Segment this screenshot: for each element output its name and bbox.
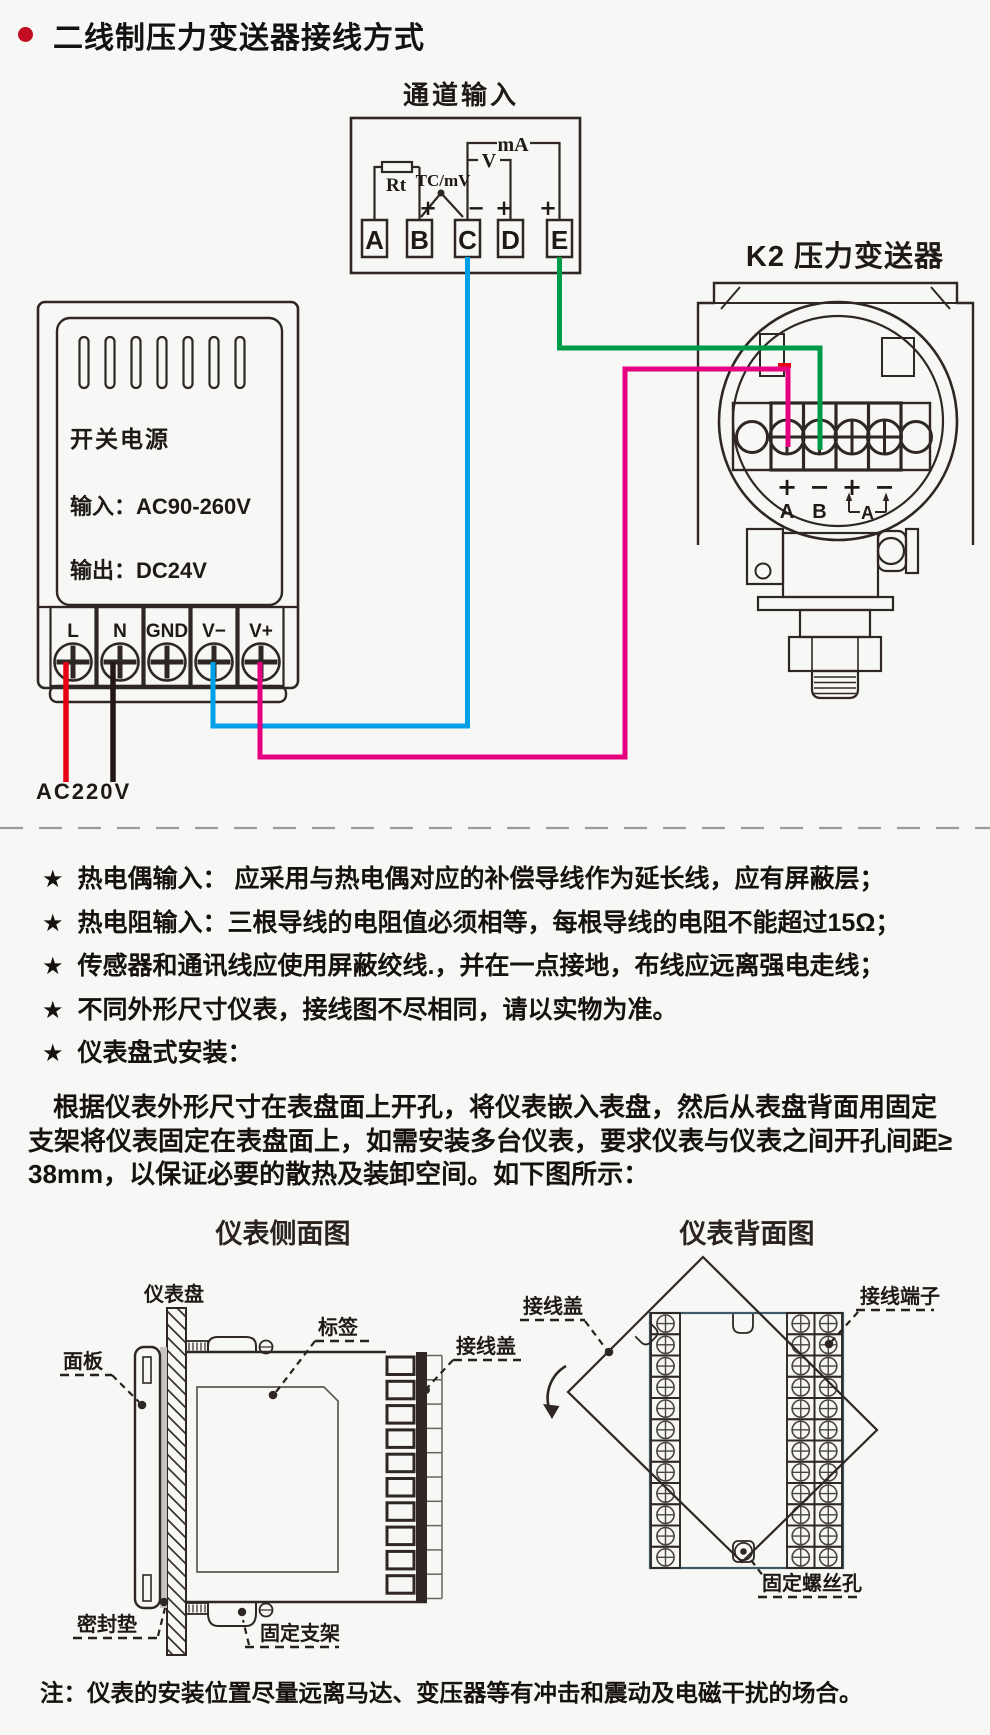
terminal-screw-columns <box>651 1313 842 1568</box>
back-view-diagram: 接线盖 接线端子 固定螺丝孔 <box>520 1257 940 1597</box>
terminal-n-label: N <box>113 621 127 642</box>
sign-minus-c: − <box>467 196 485 220</box>
terminal-block-label: 接线端子 <box>860 1284 940 1308</box>
terminal-c-letter: C <box>458 225 477 255</box>
terminal-vminus-label: V− <box>202 621 226 642</box>
note-item-3: ★传感器和通讯线应使用屏蔽绞线.，并在一点接地，布线应远离强电走线； <box>42 945 900 989</box>
ma-label: mA <box>497 134 529 156</box>
tx-sign-3: + <box>842 473 862 501</box>
back-wiring-cover-label: 接线盖 <box>523 1294 583 1318</box>
installation-paragraph: 根据仪表外形尺寸在表盘面上开孔，将仪表嵌入表盘，然后从表盘背面用固定 支架将仪表… <box>28 1091 952 1192</box>
paragraph-line-3: 38mm，以保证必要的散热及装卸空间。如下图所示： <box>28 1158 952 1192</box>
star-icon: ★ <box>42 1032 64 1076</box>
transmitter-diagram: K2 压力变送器 + − + − A B <box>698 239 973 698</box>
mains-voltage-label: AC220V <box>36 779 131 804</box>
label-sticker-area <box>197 1387 338 1572</box>
rt-resistor-symbol <box>382 162 412 172</box>
note-item-5: ★仪表盘式安装： <box>42 1032 900 1076</box>
tc-mv-label: TC/mV <box>416 171 472 190</box>
terminal-d-letter: D <box>501 225 520 255</box>
wire-signal-blue <box>213 257 468 726</box>
hex-nut <box>789 637 881 671</box>
note-text-1: 热电偶输入： 应采用与热电偶对应的补偿导线作为延长线，应有屏蔽层； <box>78 858 885 902</box>
note-item-1: ★热电偶输入： 应采用与热电偶对应的补偿导线作为延长线，应有屏蔽层； <box>42 858 900 902</box>
bottom-note: 注：仪表的安装位置尽量远离马达、变压器等有冲击和震动及电磁干扰的场合。 <box>40 1674 863 1708</box>
mounting-panel <box>167 1308 186 1655</box>
panel-label: 仪表盘 <box>143 1282 204 1306</box>
tx-sign-2: − <box>809 473 829 501</box>
power-supply-name: 开关电源 <box>70 426 170 452</box>
star-icon: ★ <box>42 945 64 989</box>
terminal-b-letter: B <box>410 225 429 255</box>
note-text-5: 仪表盘式安装： <box>78 1032 253 1076</box>
side-view-diagram: 仪表盘 面板 标签 接线盖 密封垫 固定支架 <box>60 1282 521 1655</box>
note-text-3: 传感器和通讯线应使用屏蔽绞线.，并在一点接地，布线应远离强电走线； <box>78 945 885 989</box>
tx-sign-1: + <box>777 473 797 501</box>
sign-plus-d: + <box>495 196 513 220</box>
sticker-label: 标签 <box>318 1315 359 1339</box>
side-view-title: 仪表侧面图 <box>153 1212 413 1251</box>
front-bezel <box>135 1347 160 1608</box>
terminal-vplus-label: V+ <box>249 621 273 642</box>
fixing-bracket <box>208 1602 256 1626</box>
wires <box>66 257 820 782</box>
wiring-cover-rotated <box>568 1257 877 1562</box>
side-wiring-cover-label: 接线盖 <box>456 1334 516 1358</box>
terminal-e-letter: E <box>551 225 568 255</box>
note-text-2: 热电阻输入：三根导线的电阻值必须相等，每根导线的电阻不能超过15Ω； <box>78 902 901 946</box>
terminal-gnd-label: GND <box>146 621 188 642</box>
sign-plus-b: + <box>419 196 437 220</box>
power-supply-input: 输入：AC90-260V <box>70 494 251 519</box>
front-panel-label: 面板 <box>63 1349 104 1373</box>
rt-label: Rt <box>386 175 407 196</box>
channel-input-diagram: 通道输入 Rt TC/mV V mA + − + + <box>351 80 580 273</box>
tx-bracket-label: A <box>861 503 874 523</box>
sign-plus-e: + <box>539 196 557 220</box>
vent-slots <box>80 337 245 388</box>
star-icon: ★ <box>42 989 64 1033</box>
terminal-l-label: L <box>67 621 79 642</box>
notes-list: ★热电偶输入： 应采用与热电偶对应的补偿导线作为延长线，应有屏蔽层； ★热电阻输… <box>42 858 900 1076</box>
gasket-label: 密封垫 <box>77 1612 137 1636</box>
terminal-a-letter: A <box>365 225 384 255</box>
transmitter-title: K2 压力变送器 <box>746 239 944 273</box>
tx-terminal-b: B <box>812 501 826 523</box>
wire-supply-pink <box>260 369 788 757</box>
channel-input-title: 通道输入 <box>403 80 519 110</box>
note-item-4: ★不同外形尺寸仪表，接线图不尽相同，请以实物为准。 <box>42 989 900 1033</box>
manual-page: 二线制压力变送器接线方式 通道输入 Rt TC/mV V mA + <box>0 0 990 1735</box>
power-supply-output: 输出：DC24V <box>70 558 207 583</box>
bracket-label: 固定支架 <box>260 1621 340 1645</box>
rotate-arrow-icon <box>548 1366 566 1411</box>
rear-terminal-comb <box>387 1356 442 1599</box>
note-item-2: ★热电阻输入：三根导线的电阻值必须相等，每根导线的电阻不能超过15Ω； <box>42 902 900 946</box>
paragraph-line-1: 根据仪表外形尺寸在表盘面上开孔，将仪表嵌入表盘，然后从表盘背面用固定 <box>28 1091 952 1125</box>
screw-hole-label: 固定螺丝孔 <box>762 1571 862 1595</box>
tx-terminal-a: A <box>780 501 794 523</box>
star-icon: ★ <box>42 858 64 902</box>
paragraph-line-2: 支架将仪表固定在表盘面上，如需安装多台仪表，要求仪表与仪表之间开孔间距≥ <box>28 1125 952 1159</box>
star-icon: ★ <box>42 902 64 946</box>
terminal-screws <box>55 644 280 681</box>
v-label: V <box>482 150 497 172</box>
back-view-title: 仪表背面图 <box>617 1212 877 1251</box>
note-text-4: 不同外形尺寸仪表，接线图不尽相同，请以实物为准。 <box>78 989 678 1033</box>
